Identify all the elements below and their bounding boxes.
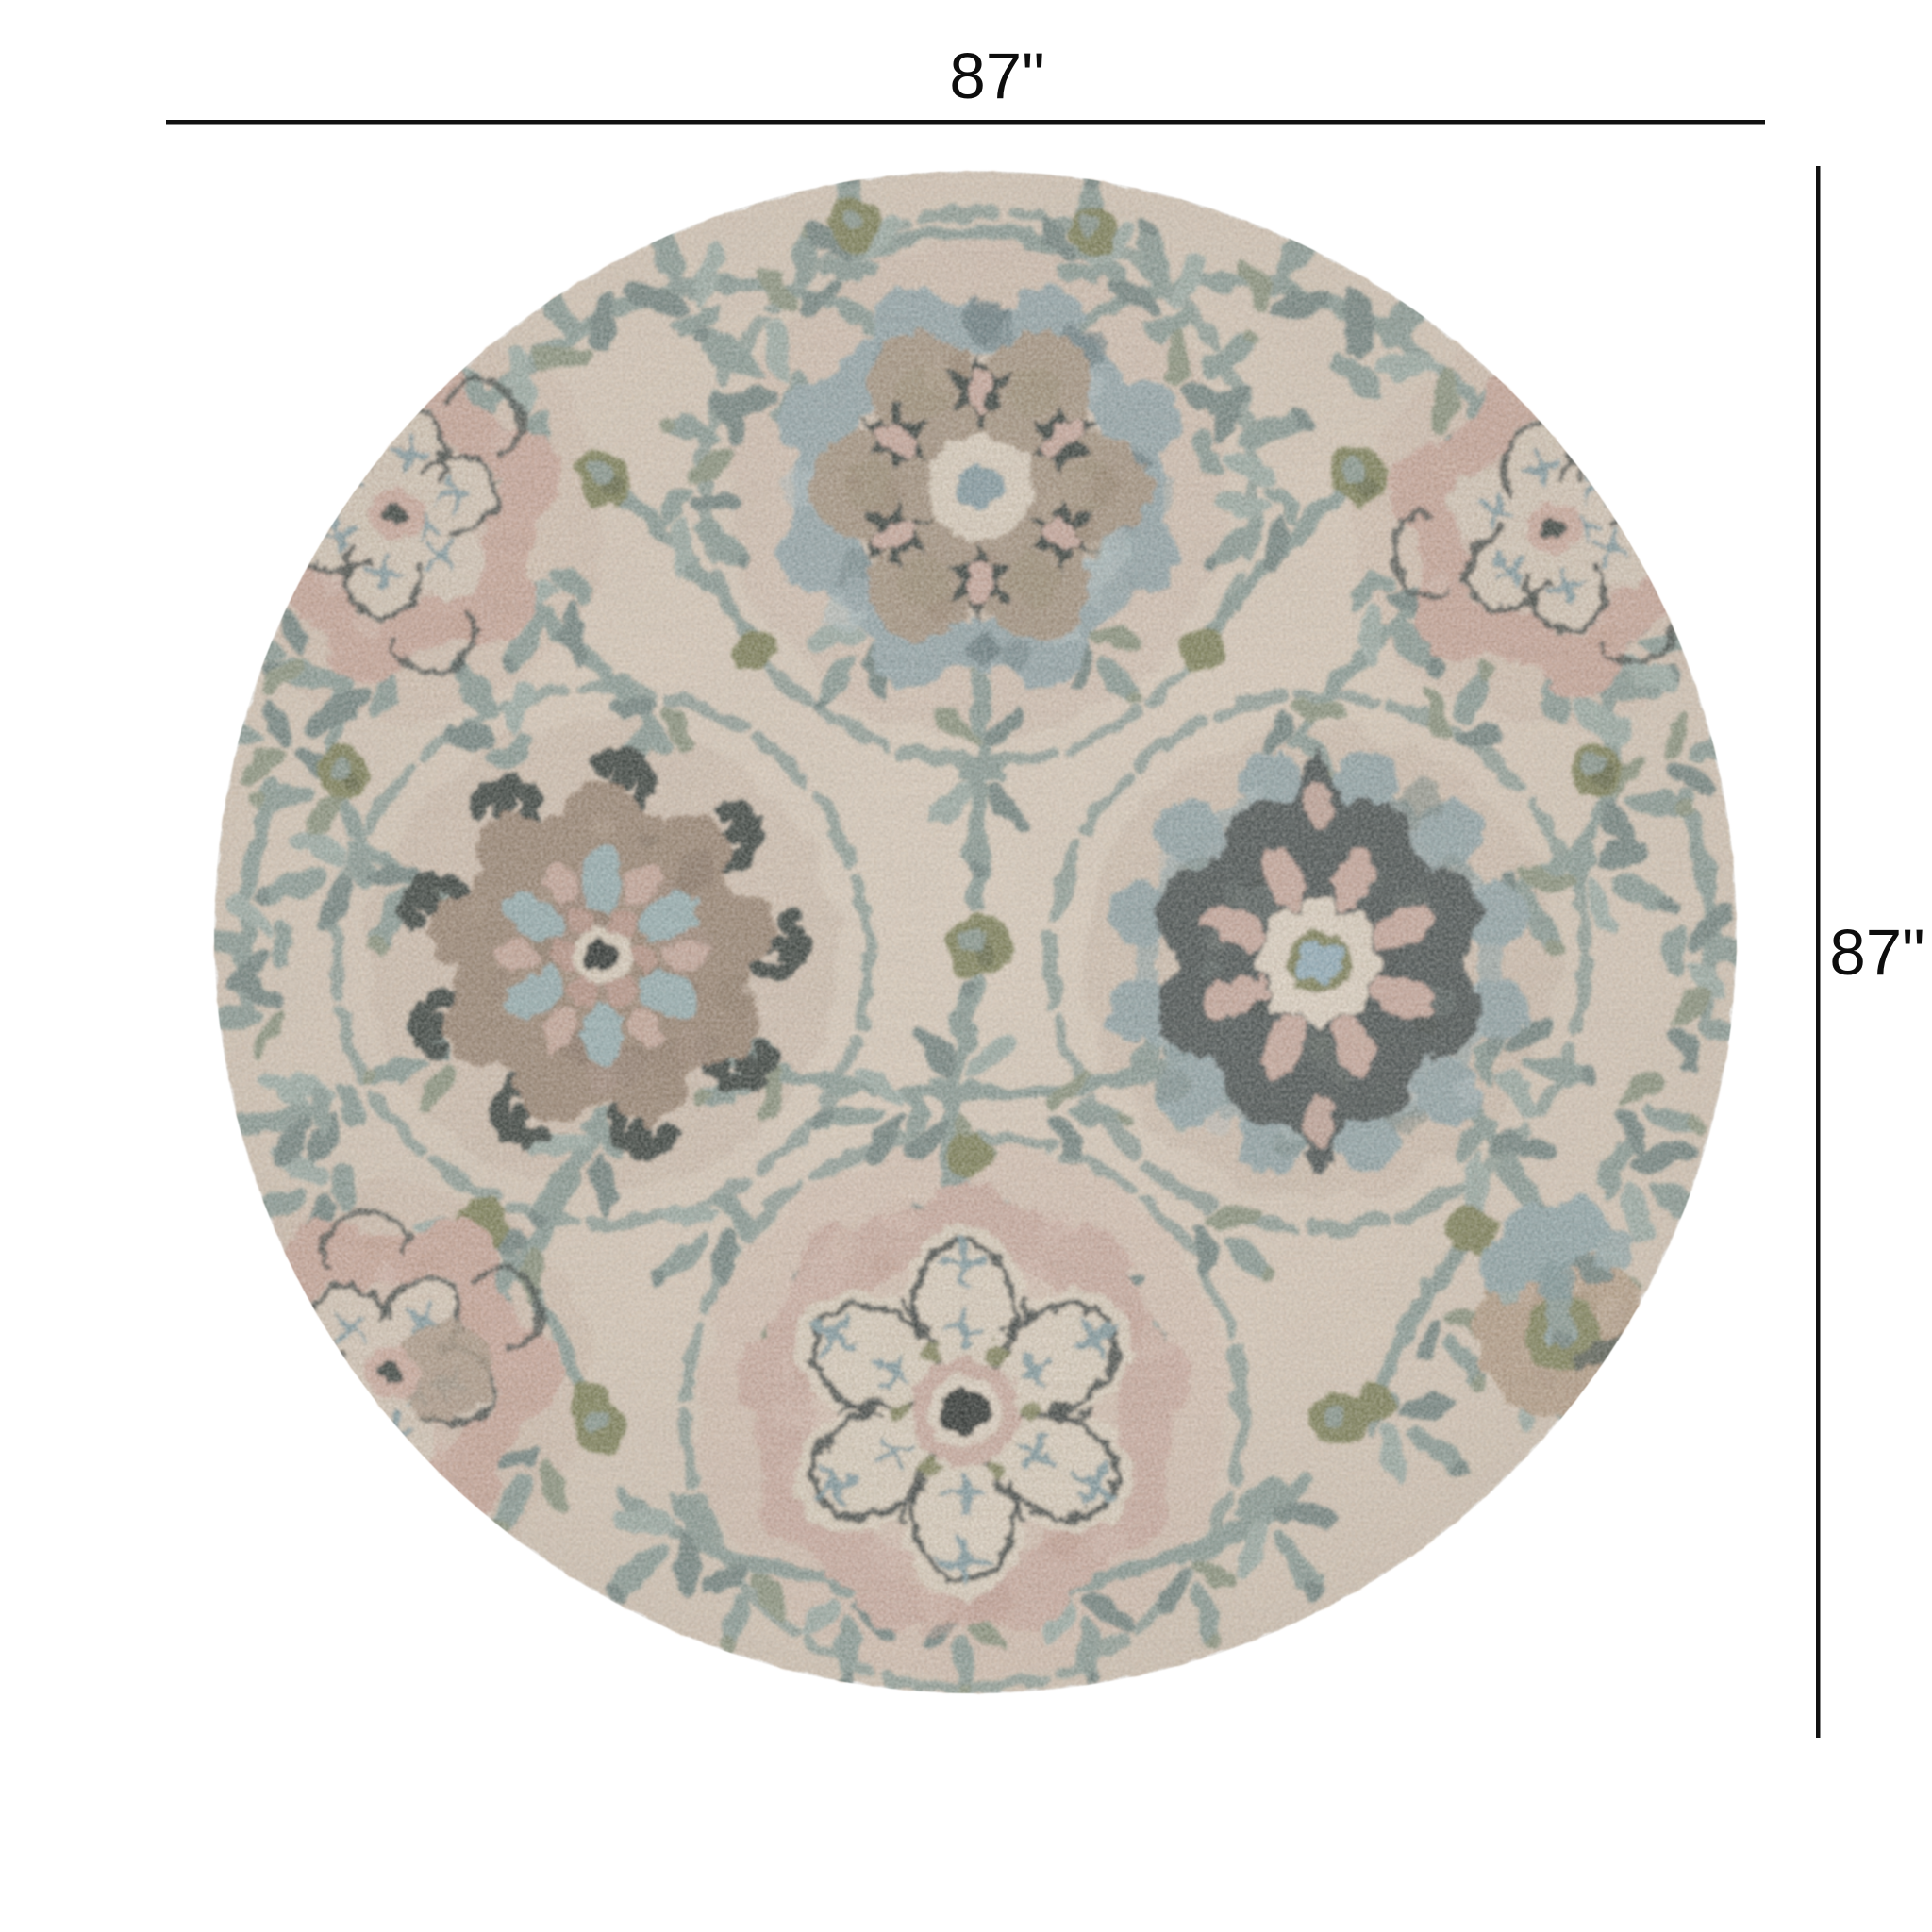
svg-text:87": 87" xyxy=(949,40,1044,112)
svg-text:87": 87" xyxy=(1829,916,1924,989)
